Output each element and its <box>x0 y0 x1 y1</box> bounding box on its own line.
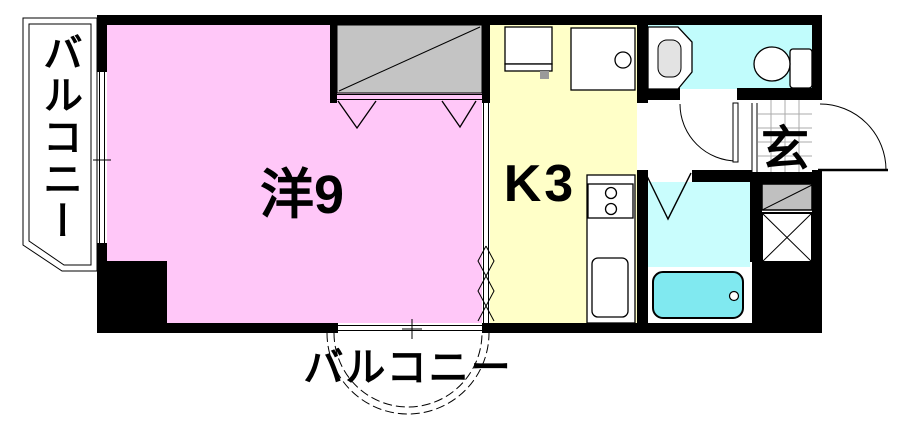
entrance-door-swing-arc <box>820 104 886 170</box>
wall-top <box>97 15 822 25</box>
window-bottom <box>338 323 482 333</box>
entrance-storage <box>762 184 812 262</box>
bathroom-floor <box>648 182 750 267</box>
wall-left-upper <box>97 15 107 72</box>
floor-plan-page: 洋9 K3 玄 バルコニー バルコニー <box>0 0 907 426</box>
door-panel <box>733 103 738 162</box>
wall-bathroom-right <box>750 182 762 262</box>
wall-kitchen-right-lower <box>637 170 648 323</box>
wall-bottom-left <box>167 323 338 333</box>
bathtub-drain-icon <box>730 292 739 301</box>
wall-kitchen-right-upper <box>637 25 648 103</box>
western-room-label: 洋9 <box>260 165 344 225</box>
vanity-bowl-icon <box>615 52 631 68</box>
wall-right-upper <box>812 15 822 100</box>
column-southwest <box>97 261 167 333</box>
entrance-step-edge <box>752 103 757 172</box>
toilet-icon <box>754 47 790 81</box>
kitchen-label: K3 <box>504 155 576 213</box>
toilet-tank-icon <box>790 49 812 88</box>
floor-plan: 洋9 K3 玄 バルコニー バルコニー <box>0 0 907 426</box>
wall-toilet-bottom-left <box>648 88 680 100</box>
wall-closet-left <box>330 25 337 103</box>
kitchen-sink-icon <box>592 258 628 317</box>
faucet-icon <box>540 71 549 79</box>
wall-partition-top <box>482 25 490 103</box>
window-left <box>97 72 107 243</box>
wall-hall-bottom <box>692 170 752 182</box>
balcony-bottom-label: バルコニー <box>303 346 512 390</box>
entrance-label: 玄 <box>761 123 809 176</box>
washing-machine-pan <box>505 64 552 71</box>
burner-icon <box>606 188 617 199</box>
washing-machine-icon <box>505 27 552 64</box>
partition-track <box>484 103 489 323</box>
balcony-left-label: バルコニー <box>37 32 81 242</box>
burner-icon <box>606 204 617 215</box>
wall-toilet-bottom-right <box>737 88 812 100</box>
wash-basin-bowl-icon <box>658 40 681 77</box>
column-southeast <box>752 262 822 333</box>
